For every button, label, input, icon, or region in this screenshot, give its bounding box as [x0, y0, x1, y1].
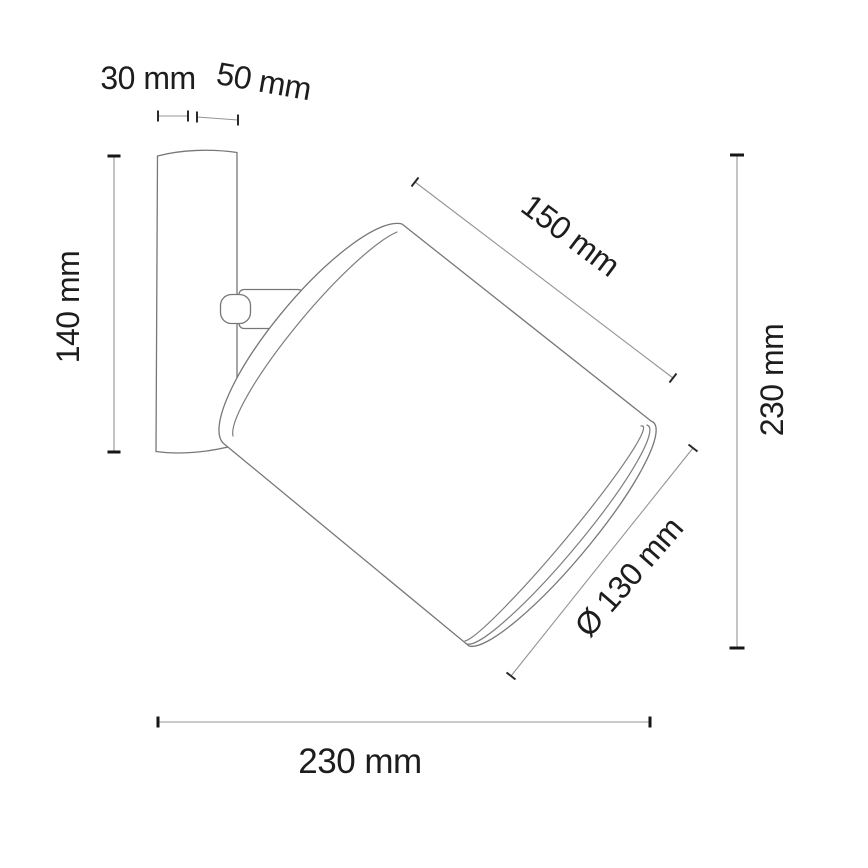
- shade-outline: [219, 223, 656, 646]
- dim-tick: [412, 178, 419, 187]
- dim-line-arm-length: [197, 117, 238, 120]
- spotlight-dimension-drawing: 30 mm 50 mm 140 mm 150 mm 230 mm Ø 130 m…: [0, 0, 868, 868]
- pivot-knob: [221, 295, 251, 324]
- label-overall-depth: 230 mm: [298, 742, 421, 781]
- label-bracket-depth: 30 mm: [100, 60, 195, 96]
- dimension-drawing-canvas: 30 mm 50 mm 140 mm 150 mm 230 mm Ø 130 m…: [0, 0, 868, 868]
- dim-tick: [670, 374, 677, 383]
- label-shade-length: 150 mm: [515, 187, 627, 284]
- label-arm-length: 50 mm: [214, 55, 314, 107]
- label-bracket-height: 140 mm: [50, 251, 86, 364]
- label-overall-height: 230 mm: [754, 324, 790, 437]
- dim-tick: [507, 673, 516, 680]
- dim-tick: [689, 445, 698, 452]
